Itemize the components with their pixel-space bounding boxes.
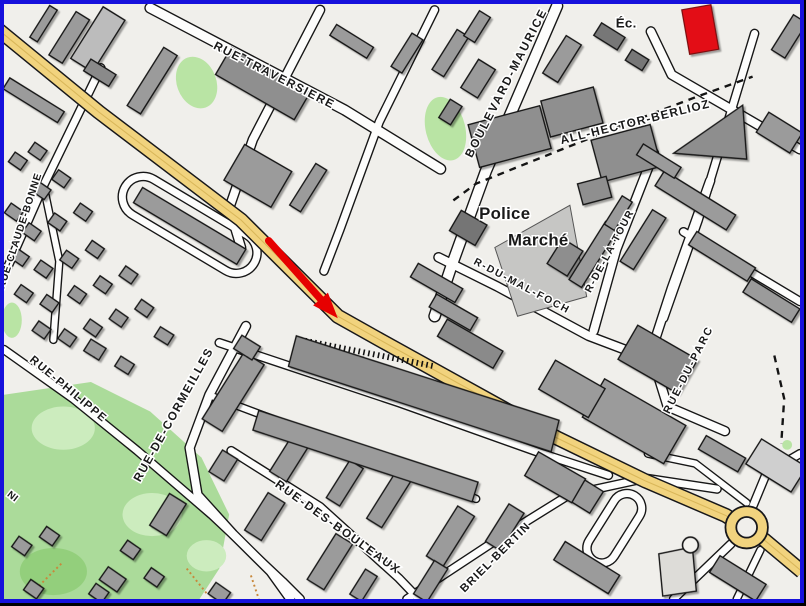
street-label: Éc.	[616, 16, 637, 31]
map-canvas: RUE-TRAVERSIERERUE-CLAUDE-BONNERUE-PHILI…	[4, 4, 800, 599]
round-landmark	[682, 537, 698, 553]
park-patch	[187, 540, 227, 571]
green-patch	[782, 440, 792, 450]
roundabout	[725, 506, 767, 548]
map-border: RUE-TRAVERSIERERUE-CLAUDE-BONNERUE-PHILI…	[0, 0, 804, 603]
building	[659, 547, 697, 596]
map-frame: RUE-TRAVERSIERERUE-CLAUDE-BONNERUE-PHILI…	[0, 0, 806, 606]
roundabout-island	[736, 517, 757, 538]
street-label: Police	[479, 204, 530, 223]
street-label: Marché	[508, 231, 569, 250]
